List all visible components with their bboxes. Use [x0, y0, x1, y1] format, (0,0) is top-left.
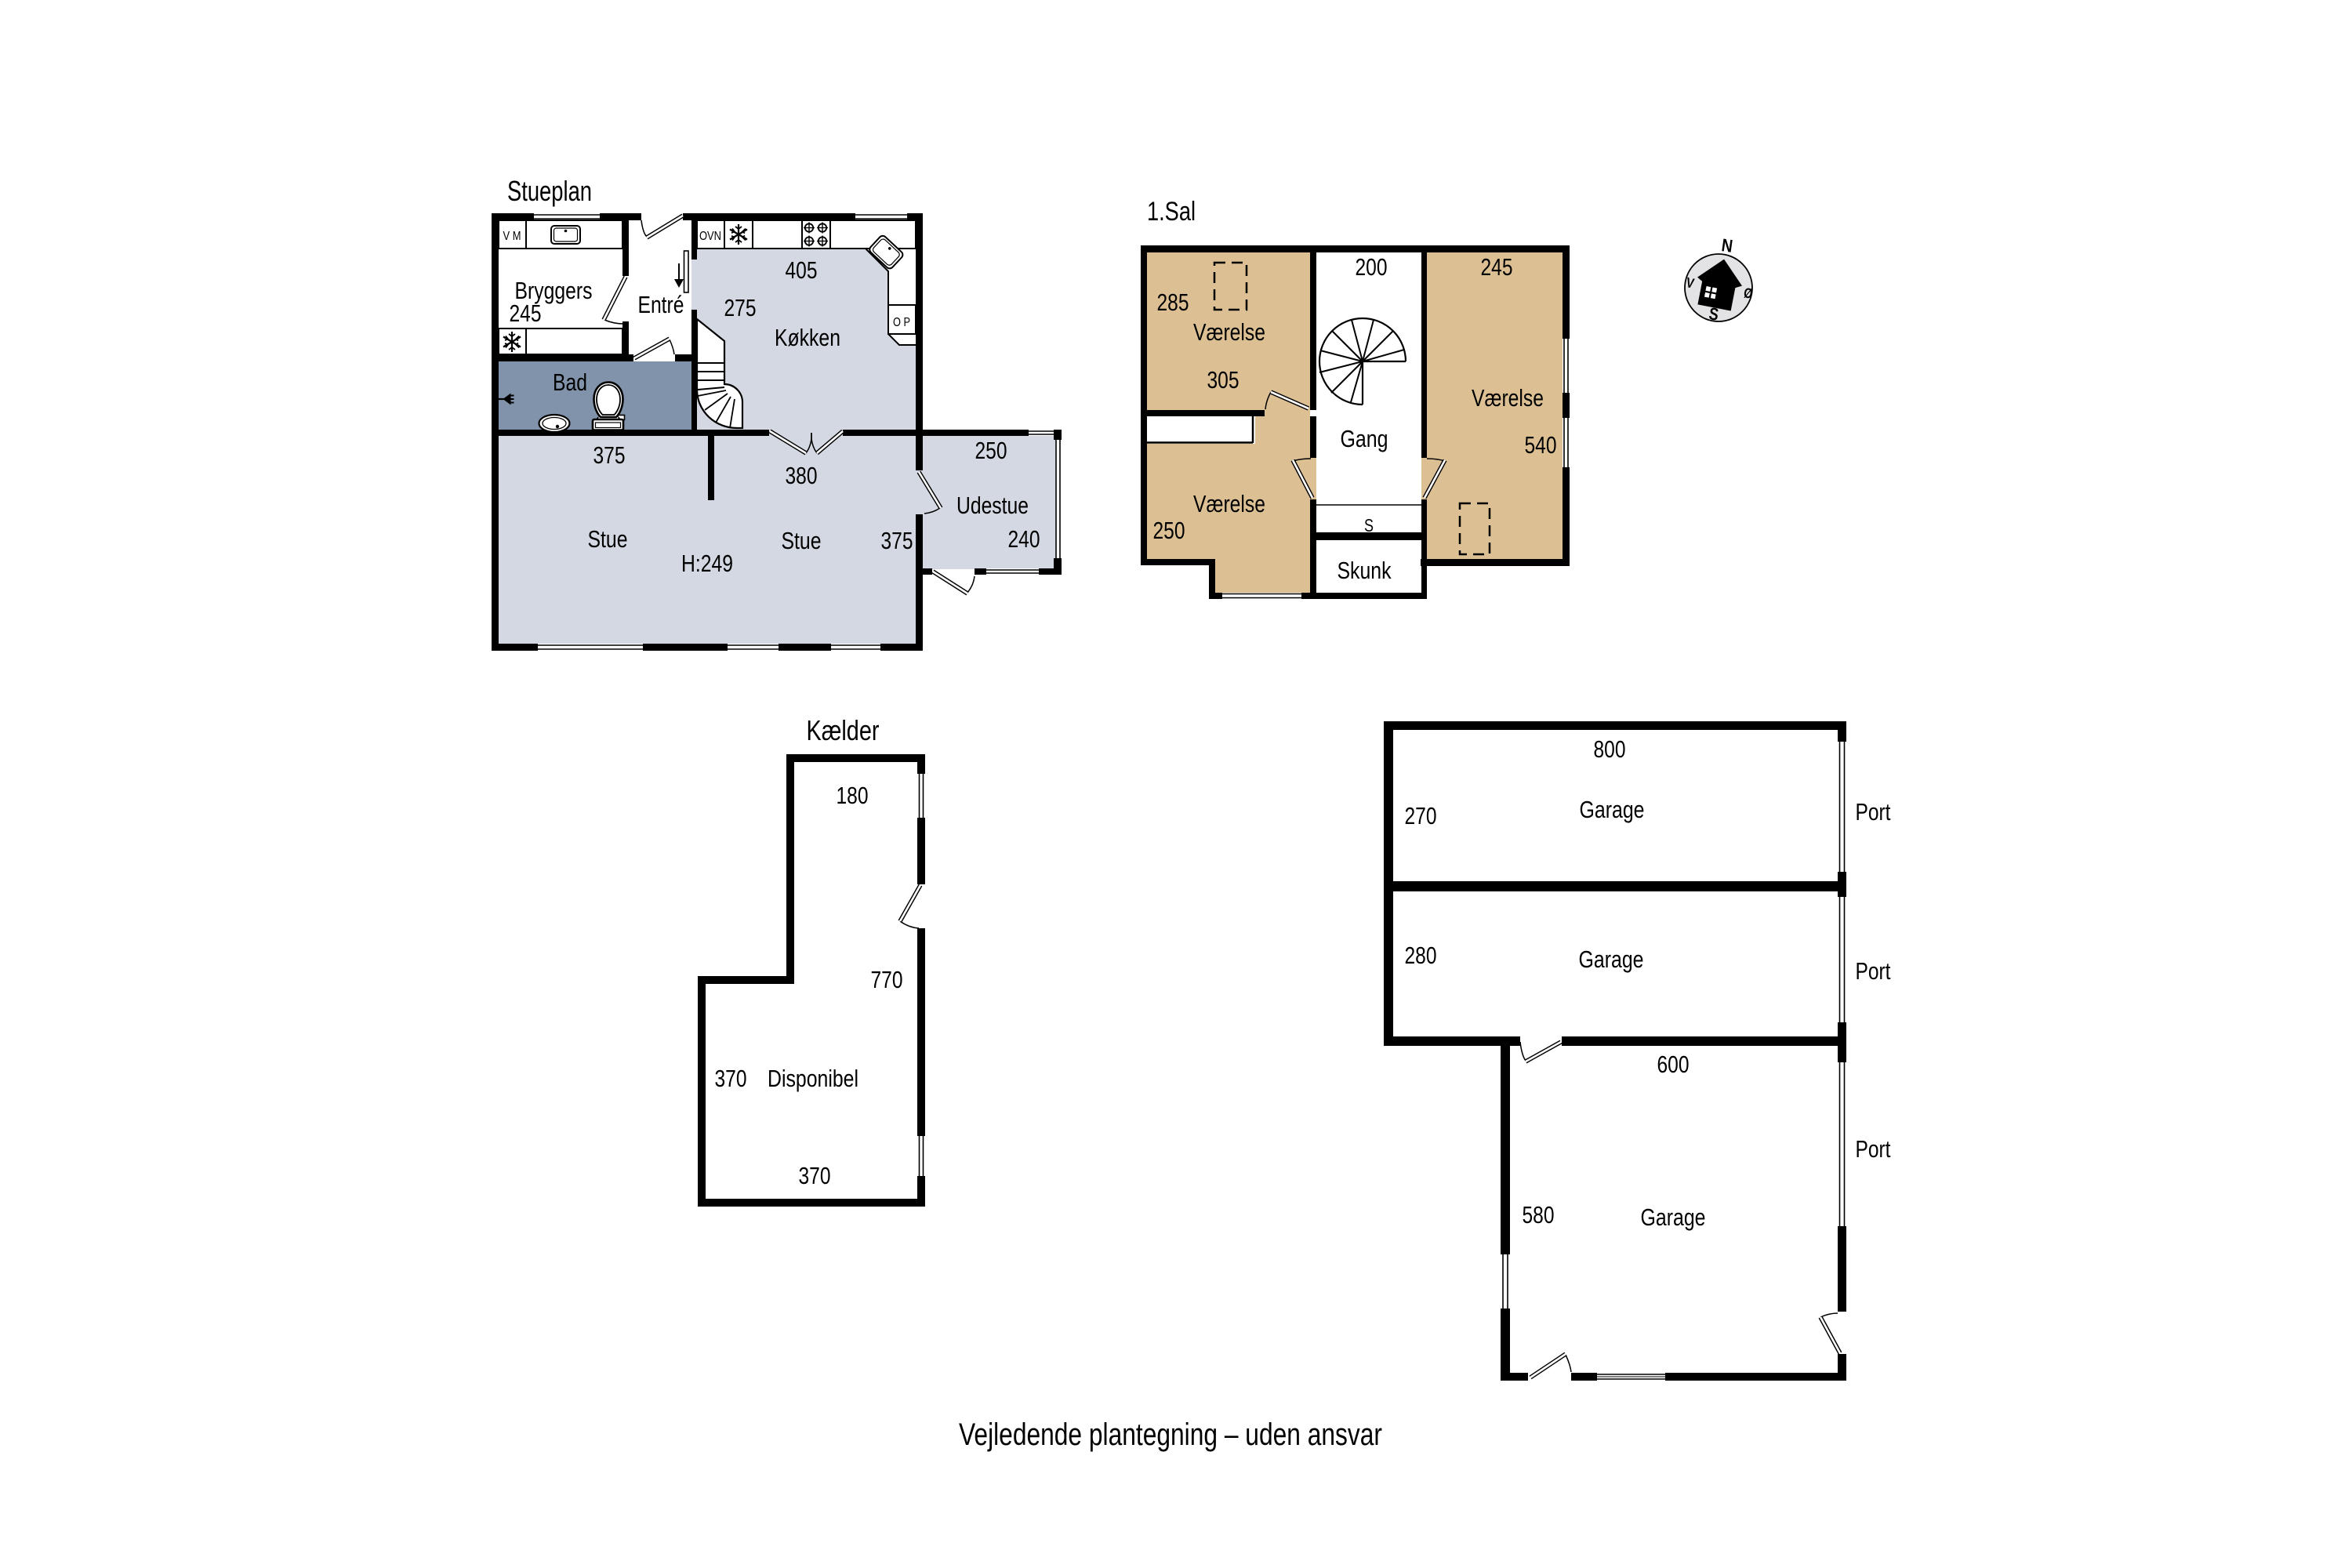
svg-text:370: 370: [715, 1065, 747, 1092]
svg-text:H:249: H:249: [681, 550, 733, 577]
svg-text:245: 245: [510, 299, 542, 327]
svg-text:Garage: Garage: [1580, 796, 1645, 823]
svg-text:280: 280: [1405, 942, 1437, 969]
svg-text:Skunk: Skunk: [1338, 557, 1392, 584]
svg-text:240: 240: [1008, 525, 1040, 553]
svg-text:Vejledende plantegning – uden: Vejledende plantegning – uden ansvar: [959, 1417, 1382, 1452]
svg-text:375: 375: [593, 441, 626, 469]
svg-text:285: 285: [1157, 289, 1189, 316]
svg-text:405: 405: [786, 256, 818, 284]
svg-text:Værelse: Værelse: [1472, 384, 1544, 412]
svg-text:Entré: Entré: [638, 291, 684, 318]
svg-text:245: 245: [1481, 253, 1513, 281]
svg-text:1.Sal: 1.Sal: [1147, 197, 1196, 227]
svg-text:Værelse: Værelse: [1193, 490, 1265, 517]
svg-text:Port: Port: [1856, 1135, 1891, 1163]
svg-text:200: 200: [1356, 253, 1388, 281]
svg-text:275: 275: [724, 294, 757, 321]
svg-text:Stueplan: Stueplan: [507, 175, 592, 207]
svg-text:770: 770: [871, 966, 903, 993]
svg-text:N: N: [1720, 234, 1733, 256]
svg-text:S: S: [1364, 515, 1374, 535]
svg-text:Ø: Ø: [1743, 285, 1754, 302]
svg-text:250: 250: [975, 437, 1007, 464]
svg-text:270: 270: [1405, 802, 1437, 829]
svg-text:Køkken: Køkken: [775, 324, 840, 351]
svg-text:Værelse: Værelse: [1193, 318, 1265, 346]
svg-text:Garage: Garage: [1641, 1203, 1706, 1231]
svg-text:Disponibel: Disponibel: [768, 1065, 858, 1092]
svg-text:180: 180: [837, 782, 869, 809]
svg-text:Stue: Stue: [782, 527, 822, 554]
svg-text:540: 540: [1525, 431, 1557, 459]
svg-text:305: 305: [1207, 366, 1240, 394]
svg-text:Garage: Garage: [1579, 946, 1644, 973]
svg-text:250: 250: [1153, 517, 1185, 544]
svg-text:V M: V M: [503, 230, 521, 243]
svg-text:370: 370: [799, 1162, 831, 1189]
svg-text:Udestue: Udestue: [956, 492, 1029, 519]
svg-text:OVN: OVN: [699, 230, 721, 243]
svg-text:Kælder: Kælder: [807, 714, 880, 746]
svg-text:O P: O P: [893, 316, 910, 329]
svg-text:Port: Port: [1856, 798, 1891, 826]
svg-text:Gang: Gang: [1341, 425, 1388, 452]
svg-text:Stue: Stue: [588, 525, 628, 553]
svg-text:Port: Port: [1856, 957, 1891, 985]
svg-text:600: 600: [1657, 1051, 1690, 1078]
svg-text:800: 800: [1594, 735, 1626, 763]
svg-text:580: 580: [1523, 1201, 1555, 1229]
svg-text:380: 380: [786, 462, 818, 489]
svg-text:375: 375: [881, 527, 913, 554]
svg-text:Bad: Bad: [553, 368, 587, 396]
